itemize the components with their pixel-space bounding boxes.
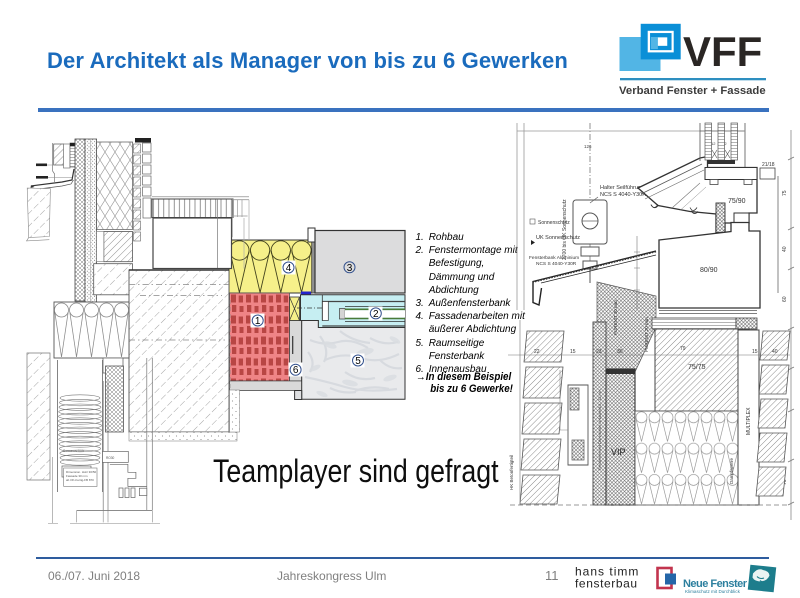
svg-text:79: 79 <box>680 346 686 352</box>
svg-text:40: 40 <box>782 246 788 252</box>
svg-text:Sonnenschutz: Sonnenschutz <box>538 220 570 226</box>
svg-text:ab OK-Fertig-FB 870: ab OK-Fertig-FB 870 <box>66 478 94 482</box>
svg-text:23: 23 <box>596 349 602 355</box>
svg-text:Klimaschutz mit Durchblick: Klimaschutz mit Durchblick <box>685 589 741 594</box>
svg-text:fensterbau: fensterbau <box>575 577 638 591</box>
svg-text:VIP: VIP <box>611 447 626 457</box>
svg-text:126: 126 <box>584 144 592 149</box>
svg-text:30: 30 <box>617 349 623 355</box>
svg-text:Fensterelement Dämmkeder umlau: Fensterelement Dämmkeder umlaufend 8 - 1… <box>598 390 602 471</box>
svg-text:21/18: 21/18 <box>762 162 775 168</box>
svg-text:60: 60 <box>782 296 788 302</box>
svg-text:Verband Fenster + Fassade: Verband Fenster + Fassade <box>619 85 766 97</box>
svg-text:75/90: 75/90 <box>728 198 746 205</box>
svg-text:2700 bis OK Sonnenschutz: 2700 bis OK Sonnenschutz <box>562 199 568 260</box>
svg-text:PURENIT 20 mm: PURENIT 20 mm <box>644 317 649 352</box>
svg-text:VFF: VFF <box>683 28 762 75</box>
svg-text:NCS S 4040-Y30R: NCS S 4040-Y30R <box>536 261 577 267</box>
svg-text:2: 2 <box>373 309 379 320</box>
svg-text:22: 22 <box>534 349 540 355</box>
svg-text:RO30: RO30 <box>106 456 115 460</box>
svg-text:Sonnenschutz: Sonnenschutz <box>63 449 85 453</box>
svg-text:NCS S 4040-Y30R: NCS S 4040-Y30R <box>600 192 646 198</box>
svg-text:PURENIT 30 mm: PURENIT 30 mm <box>613 300 618 335</box>
svg-text:15: 15 <box>752 349 758 355</box>
svg-text:5: 5 <box>355 356 361 367</box>
svg-text:HK Betonfertigteil: HK Betonfertigteil <box>509 455 514 490</box>
svg-text:UK Sonnenschutz: UK Sonnenschutz <box>536 235 580 241</box>
svg-text:40: 40 <box>772 349 778 355</box>
svg-text:80/90: 80/90 <box>700 267 718 274</box>
svg-text:15: 15 <box>570 349 576 355</box>
svg-text:MULTIPLEX: MULTIPLEX <box>746 407 752 435</box>
svg-text:Fensterbank Aluminium: Fensterbank Aluminium <box>529 255 579 261</box>
svg-text:3: 3 <box>347 263 353 274</box>
svg-text:Dampfsperre: Dampfsperre <box>729 457 734 484</box>
svg-text:75: 75 <box>782 190 788 196</box>
svg-text:75/75: 75/75 <box>688 364 706 371</box>
